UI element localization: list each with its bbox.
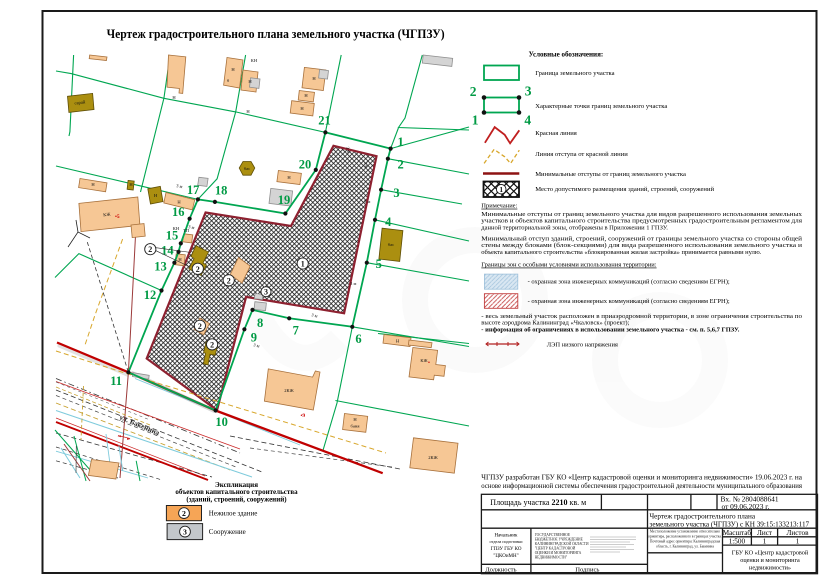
svg-text:Почтовый адрес ориентира: Кали: Почтовый адрес ориентира: Калининградска…: [650, 540, 721, 544]
svg-text:объекта капитального строитель: объекта капитального строительства «блок…: [481, 249, 761, 256]
svg-text:2: 2: [148, 245, 152, 254]
svg-text:3: 3: [264, 288, 268, 297]
svg-text:Красная линия: Красная линия: [535, 130, 577, 137]
svg-text:7: 7: [293, 323, 299, 337]
svg-text:от 09.06.2023 г.: от 09.06.2023 г.: [722, 502, 770, 511]
svg-text:Сооружение: Сооружение: [209, 528, 246, 536]
svg-text:2: 2: [227, 276, 231, 285]
svg-text:8: 8: [257, 316, 263, 330]
svg-text:5: 5: [376, 257, 382, 271]
svg-text:1: 1: [301, 260, 305, 269]
svg-text:12: 12: [144, 288, 157, 302]
svg-text:Площадь участка 2210 кв. м: Площадь участка 2210 кв. м: [490, 498, 586, 507]
svg-text:Местоположение установленно от: Местоположение установленно относительно: [650, 530, 720, 534]
svg-text:оценки и мониторинга: оценки и мониторинга: [740, 557, 800, 564]
svg-text:высоте аэродрома Калининград «: высоте аэродрома Калининград «Чкаловск» …: [481, 320, 629, 327]
svg-text:данной территориальной зоны, о: данной территориальной зоны, отображены …: [481, 224, 668, 231]
svg-text:1: 1: [398, 135, 404, 149]
svg-text:3 м: 3 м: [364, 199, 370, 204]
svg-text:ЧГПЗУ разработан ГБУ КО «Ц: ЧГПЗУ разработан ГБУ КО «Центр кадастров…: [481, 475, 802, 482]
svg-text:КН: КН: [173, 226, 180, 231]
svg-text:Подпись: Подпись: [575, 566, 599, 573]
svg-text:ГОСУДАРСТВЕННОЕ: ГОСУДАРСТВЕННОЕ: [535, 533, 571, 537]
svg-text:2КЖ: 2КЖ: [428, 455, 438, 460]
svg-text:2: 2: [470, 84, 477, 99]
svg-text:16: 16: [172, 205, 185, 219]
svg-text:Характерные точки границ земел: Характерные точки границ земельного учас…: [535, 103, 667, 110]
svg-text:4: 4: [385, 215, 392, 229]
svg-text:•5: •5: [115, 214, 120, 220]
svg-text:3 м: 3 м: [350, 281, 356, 286]
svg-text:БЮДЖЕТНОЕ УЧРЕЖДЕНИЕ: БЮДЖЕТНОЕ УЧРЕЖДЕНИЕ: [535, 538, 584, 542]
svg-text:НЕДВИЖИМОСТИ": НЕДВИЖИМОСТИ": [535, 556, 568, 560]
svg-text:Граница земельного участка: Граница земельного участка: [535, 70, 614, 77]
svg-text:17: 17: [187, 183, 200, 197]
svg-text:- информация об ограничениях в: - информация об ограничениях в использов…: [481, 327, 739, 334]
svg-text:3: 3: [393, 186, 399, 200]
svg-text:14: 14: [161, 243, 174, 257]
svg-text:6: 6: [355, 332, 361, 346]
svg-text:Линия отступа от красной линии: Линия отступа от красной линии: [535, 151, 628, 158]
svg-text:"ЦКОиМН": "ЦКОиМН": [493, 554, 518, 559]
svg-text:19: 19: [278, 193, 291, 207]
svg-text:КН: КН: [251, 58, 258, 63]
svg-text:18: 18: [215, 184, 228, 198]
svg-text:1: 1: [499, 185, 503, 194]
svg-text:2: 2: [210, 340, 214, 349]
svg-text:Место допустимого размещения з: Место допустимого размещения зданий, стр…: [535, 186, 714, 193]
svg-text:основе информационной системы: основе информационной системы обеспечени…: [481, 483, 802, 490]
svg-text:4: 4: [524, 113, 531, 128]
svg-text:3: 3: [525, 84, 532, 99]
svg-text:3: 3: [183, 527, 187, 536]
svg-text:Листов: Листов: [787, 529, 810, 537]
svg-text:Лист: Лист: [757, 529, 773, 537]
svg-text:•9: •9: [301, 413, 306, 419]
svg-text:Нежилое здание: Нежилое здание: [209, 510, 258, 518]
svg-text:21: 21: [318, 114, 331, 128]
svg-text:1:500: 1:500: [729, 537, 746, 545]
svg-text:1: 1: [763, 537, 767, 545]
svg-text:2: 2: [198, 322, 202, 331]
svg-text:Условные обозначения:: Условные обозначения:: [529, 51, 604, 59]
svg-text:Должность: Должность: [485, 566, 516, 573]
svg-text:ОЦЕНКИ И МОНИТОРИНГА: ОЦЕНКИ И МОНИТОРИНГА: [535, 551, 582, 555]
svg-text:Начальник: Начальник: [495, 534, 519, 539]
svg-text:- охранная зона инженерных ком: - охранная зона инженерных коммуникаций …: [528, 279, 730, 286]
svg-text:отдела подготовки: отдела подготовки: [490, 539, 524, 544]
svg-text:(зданий, строений, сооружений): (зданий, строений, сооружений): [186, 496, 287, 504]
svg-text:земельного участка (ЧГПЗУ) с К: земельного участка (ЧГПЗУ) с КН 39:15:13…: [650, 521, 810, 529]
svg-text:2КЖ: 2КЖ: [284, 388, 294, 393]
svg-text:Чертеж градостроительного план: Чертеж градостроительного плана: [650, 513, 756, 521]
svg-text:ГПЗУ ГБУ КО: ГПЗУ ГБУ КО: [491, 547, 522, 552]
svg-text:ГБУ КО «Центр кадастровой: ГБУ КО «Центр кадастровой: [732, 550, 809, 557]
svg-text:КАЛИНИНГРАДСКОЙ ОБЛАСТИ: КАЛИНИНГРАДСКОЙ ОБЛАСТИ: [535, 541, 589, 546]
svg-text:2: 2: [182, 509, 186, 518]
svg-text:Границы зон с особыми условиям: Границы зон с особыми условиями использо…: [481, 262, 656, 269]
svg-text:•: •: [428, 360, 430, 366]
svg-text:бас: бас: [388, 242, 394, 247]
svg-text:Минимальные отступы от границ: Минимальные отступы от границ земельного…: [535, 171, 686, 178]
svg-text:20: 20: [299, 158, 312, 172]
svg-text:"ЦЕНТР КАДАСТРОВОЙ: "ЦЕНТР КАДАСТРОВОЙ: [535, 546, 576, 551]
svg-text:2: 2: [398, 157, 404, 171]
svg-text:баня: баня: [351, 424, 361, 429]
svg-text:бас: бас: [244, 166, 250, 171]
svg-text:1: 1: [472, 112, 479, 127]
svg-text:11: 11: [110, 374, 122, 388]
svg-text:Примечание:: Примечание:: [481, 203, 517, 210]
svg-text:Масштаб: Масштаб: [723, 529, 752, 537]
svg-text:недвижимости»: недвижимости»: [749, 565, 791, 572]
svg-text:2: 2: [196, 265, 200, 274]
svg-text:13: 13: [154, 259, 167, 273]
svg-text:10: 10: [215, 415, 228, 429]
svg-text:1: 1: [796, 537, 800, 545]
svg-text:ЛЭП низкого напряжения: ЛЭП низкого напряжения: [547, 342, 618, 349]
svg-text:Чертеж градостроительного план: Чертеж градостроительного плана земельно…: [107, 27, 445, 41]
svg-text:- охранная зона инженерных ком: - охранная зона инженерных коммуникаций …: [528, 298, 730, 305]
